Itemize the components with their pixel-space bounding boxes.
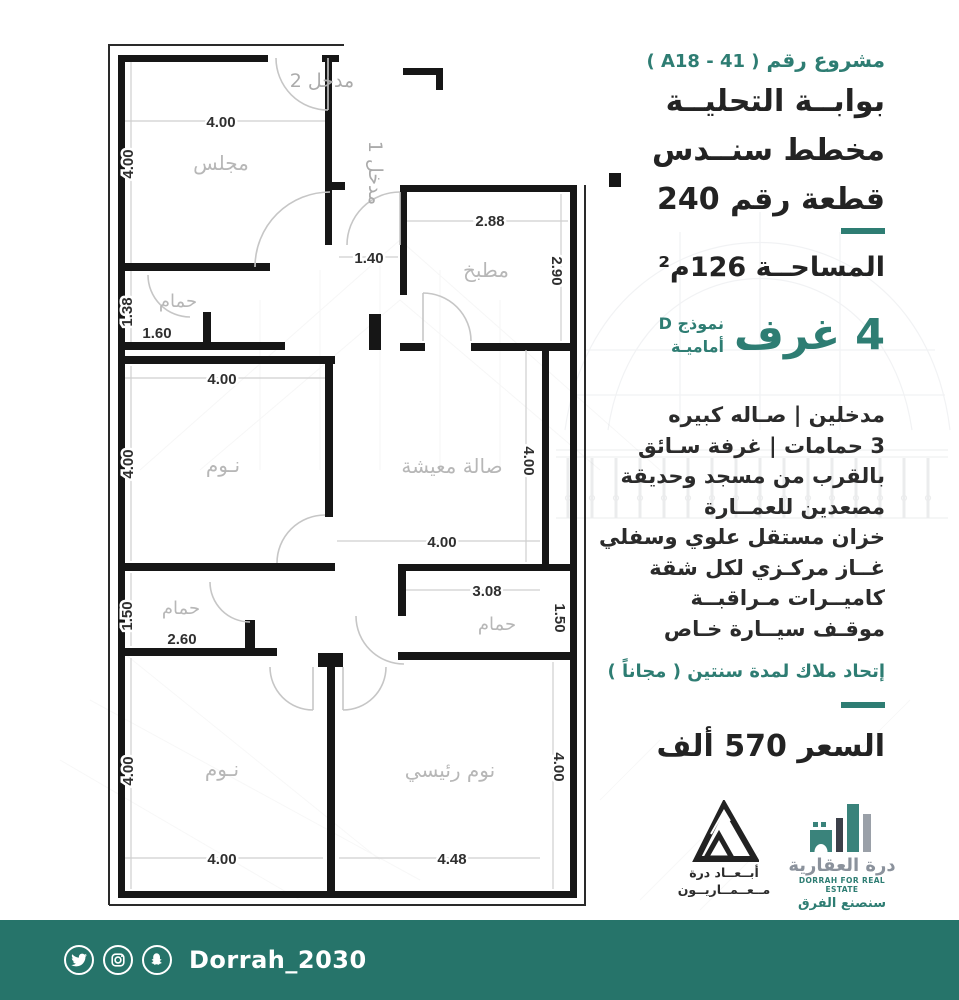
svg-text:مطبخ: مطبخ — [463, 258, 509, 282]
svg-text:حمام: حمام — [159, 291, 197, 312]
triangle-logo-icon — [689, 800, 759, 864]
feature-item: بالقرب من مسجد وحديقة — [599, 461, 885, 492]
feature-item: خزان مستقل علوي وسفلي — [599, 522, 885, 553]
project-title-line2: مخطط سنــدس — [652, 133, 885, 168]
dorrah-name-arabic: درة العقارية — [788, 856, 896, 876]
project-label: مشروع رقم — [766, 48, 885, 72]
feature-item: 3 حمامات | غرفة سـائق — [599, 431, 885, 462]
dorrah-name-english: DORRAH FOR REAL ESTATE — [788, 876, 896, 894]
social-handle: Dorrah_2030 — [189, 946, 367, 974]
feature-item: غــاز مركـزي لكل شقة — [599, 553, 885, 584]
dorrah-buildings-icon — [800, 800, 884, 856]
svg-text:مدخل 2: مدخل 2 — [290, 70, 354, 92]
feature-item: موقـف سيــارة خـاص — [599, 614, 885, 645]
info-panel: مشروع رقم ( A18 - 41 ) بوابــة التحليــة… — [625, 0, 891, 930]
footer-bar: Dorrah_2030 — [0, 920, 959, 1000]
svg-text:2.60: 2.60 — [167, 631, 196, 648]
project-code: ( A18 - 41 ) — [646, 51, 759, 72]
svg-text:1.38: 1.38 — [119, 297, 136, 326]
teal-divider — [841, 228, 885, 234]
svg-text:4.00: 4.00 — [120, 149, 137, 178]
abaad-logo-text-line1: أبــعــاد درة — [676, 864, 772, 881]
svg-text:مدخل 1: مدخل 1 — [364, 141, 386, 205]
feature-item: كاميــرات مـراقبــة — [599, 583, 885, 614]
model-line2: أماميـة — [659, 335, 724, 358]
owners-union-note: إتحاد ملاك لمدة سنتين ( مجاناً ) — [608, 661, 885, 682]
svg-text:4.00: 4.00 — [120, 449, 137, 478]
instagram-icon[interactable] — [103, 945, 133, 975]
svg-text:3.08: 3.08 — [472, 583, 501, 600]
area-text: المساحــة 126م² — [658, 252, 885, 283]
svg-text:4.00: 4.00 — [550, 752, 567, 781]
teal-divider — [841, 702, 885, 708]
feature-item: مصعدين للعمــارة — [599, 492, 885, 523]
snapchat-icon[interactable] — [142, 945, 172, 975]
price-text: السعر 570 ألف — [657, 729, 885, 764]
floor-plan: 4.00 4.00 1.38 1.60 1.40 2.88 2.90 4.00 … — [82, 38, 632, 908]
svg-text:صالة معيشة: صالة معيشة — [401, 454, 502, 478]
svg-text:حمام: حمام — [478, 614, 516, 635]
feature-item: مدخلين | صـاله كبيره — [599, 400, 885, 431]
project-title-line3: قطعة رقم 240 — [657, 182, 885, 217]
svg-text:2.90: 2.90 — [548, 256, 565, 285]
svg-text:نـوم: نـوم — [205, 757, 239, 781]
twitter-icon[interactable] — [64, 945, 94, 975]
svg-text:نوم رئيسي: نوم رئيسي — [405, 758, 495, 783]
abaad-dorrah-architects-logo: أبــعــاد درة مــعــمــاريــون — [676, 800, 772, 898]
svg-text:1.60: 1.60 — [142, 325, 171, 342]
rooms-count: 4 غرف — [734, 306, 885, 364]
project-number-line: مشروع رقم ( A18 - 41 ) — [646, 48, 885, 72]
svg-text:2.88: 2.88 — [475, 213, 504, 230]
svg-text:4.00: 4.00 — [120, 756, 137, 785]
dimension-labels: 4.00 4.00 1.38 1.60 1.40 2.88 2.90 4.00 … — [119, 114, 568, 868]
svg-text:4.00: 4.00 — [427, 534, 456, 551]
model-line1: نموذج D — [659, 312, 724, 335]
svg-text:1.50: 1.50 — [119, 601, 136, 630]
dorrah-slogan: سنصنع الفرق — [788, 896, 896, 911]
svg-text:حمام: حمام — [162, 598, 200, 619]
svg-text:مجلس: مجلس — [193, 151, 249, 175]
svg-text:نـوم: نـوم — [206, 453, 240, 477]
svg-text:4.00: 4.00 — [520, 446, 537, 475]
svg-text:4.00: 4.00 — [206, 114, 235, 131]
abaad-logo-text-line2: مــعــمــاريــون — [676, 881, 772, 898]
svg-text:4.48: 4.48 — [437, 851, 466, 868]
svg-text:4.00: 4.00 — [207, 371, 236, 388]
svg-text:1.40: 1.40 — [354, 250, 383, 267]
room-labels: مجلس حمام مطبخ نـوم صالة معيشة حمام نـوم… — [159, 70, 516, 783]
rooms-count-row: 4 غرف نموذج D أماميـة — [659, 306, 885, 364]
svg-text:4.00: 4.00 — [207, 851, 236, 868]
dorrah-real-estate-logo: درة العقارية DORRAH FOR REAL ESTATE سنصن… — [788, 800, 896, 911]
project-title-line1: بوابــة التحليــة — [666, 84, 885, 119]
model-info: نموذج D أماميـة — [659, 312, 724, 358]
svg-text:1.50: 1.50 — [551, 603, 568, 632]
features-list: مدخلين | صـاله كبيره3 حمامات | غرفة سـائ… — [599, 400, 885, 644]
